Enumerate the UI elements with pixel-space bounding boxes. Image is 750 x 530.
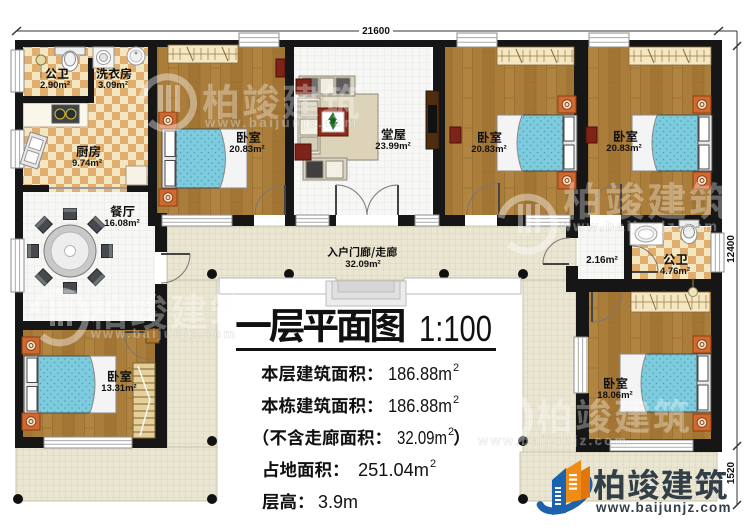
svg-text:20.83m²: 20.83m² <box>229 144 264 155</box>
svg-text:1:100: 1:100 <box>419 308 492 349</box>
svg-text:www.baijunjz.com: www.baijunjz.com <box>595 500 732 515</box>
svg-text:2: 2 <box>453 362 459 374</box>
svg-text:3.09m²: 3.09m² <box>98 80 128 91</box>
svg-text:www.baijunjz.com: www.baijunjz.com <box>90 327 237 341</box>
svg-text:12400: 12400 <box>726 235 737 263</box>
svg-text:2: 2 <box>448 426 454 438</box>
svg-text:251.04m: 251.04m <box>358 459 429 480</box>
svg-text:www.baijunjz.com: www.baijunjz.com <box>559 218 719 234</box>
svg-text:186.88m: 186.88m <box>388 363 452 384</box>
svg-text:9.74m²: 9.74m² <box>72 158 102 169</box>
svg-text:www.baijunjz.com: www.baijunjz.com <box>204 115 359 130</box>
svg-text:2: 2 <box>453 394 459 406</box>
svg-text:20.83m²: 20.83m² <box>471 144 506 155</box>
svg-text:23.99m²: 23.99m² <box>375 141 410 152</box>
svg-text:4.76m²: 4.76m² <box>660 266 690 277</box>
svg-text:32.09m²: 32.09m² <box>345 259 380 270</box>
svg-text:21600: 21600 <box>362 26 390 37</box>
svg-text:2.90m²: 2.90m² <box>40 80 70 91</box>
svg-text:3.9m: 3.9m <box>318 491 358 512</box>
svg-text:18.06m²: 18.06m² <box>597 390 632 401</box>
svg-text:2: 2 <box>430 458 436 470</box>
svg-text:32.09m: 32.09m <box>397 427 447 448</box>
svg-text:16.08m²: 16.08m² <box>104 218 139 229</box>
svg-text:2.16m²: 2.16m² <box>586 255 618 266</box>
svg-text:13.31m²: 13.31m² <box>101 383 136 394</box>
svg-text:20.83m²: 20.83m² <box>606 143 641 154</box>
svg-text:www.baijunjz.com: www.baijunjz.com <box>477 433 629 448</box>
svg-text:1520: 1520 <box>726 461 737 484</box>
svg-text:186.88m: 186.88m <box>388 395 452 416</box>
